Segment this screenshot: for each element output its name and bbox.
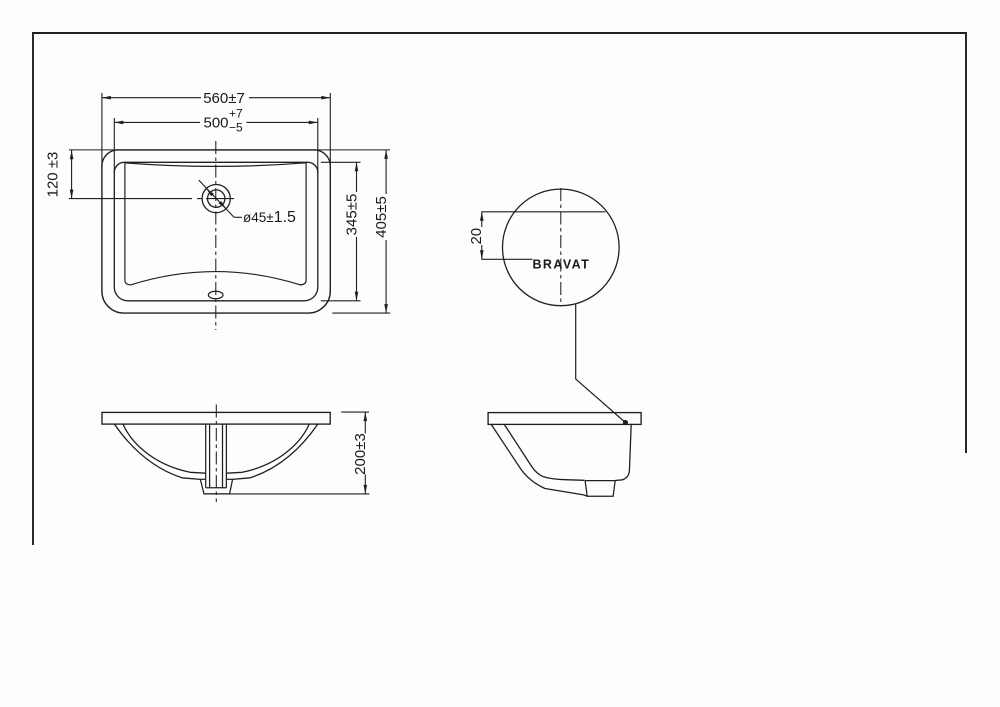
svg-text:20: 20 bbox=[468, 228, 485, 245]
svg-text:405±5: 405±5 bbox=[373, 196, 390, 238]
svg-text:500: 500 bbox=[203, 115, 228, 132]
svg-text:ø45±1.5: ø45±1.5 bbox=[243, 209, 296, 226]
svg-text:200±3: 200±3 bbox=[352, 433, 369, 475]
svg-text:+7: +7 bbox=[229, 107, 243, 121]
svg-text:560±7: 560±7 bbox=[203, 90, 245, 107]
svg-text:BRAVAT: BRAVAT bbox=[533, 258, 591, 272]
svg-text:120 ±3: 120 ±3 bbox=[45, 152, 62, 198]
svg-text:345±5: 345±5 bbox=[344, 194, 361, 236]
svg-text:−5: −5 bbox=[229, 121, 243, 135]
